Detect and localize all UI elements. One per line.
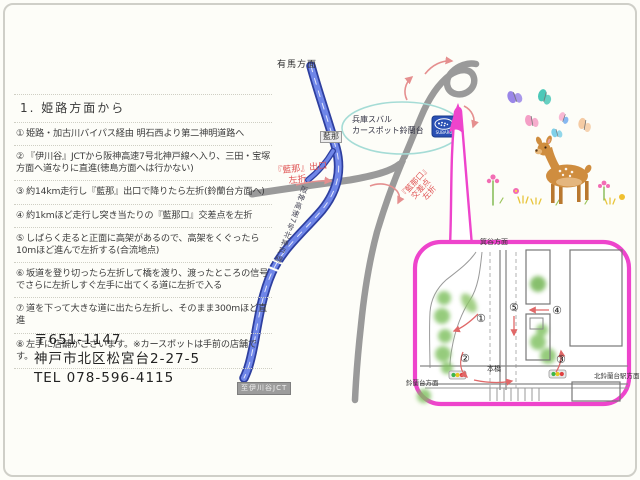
direction-step: ③約14km走行し『藍那』出口で降りたら左折(鈴蘭台方面へ) [14, 181, 272, 204]
inset-label-kitasuzurandai-station: 北鈴蘭台駅方面 [594, 370, 640, 380]
inset-step-4: ④ [552, 305, 562, 316]
inset-label-minotani: 箕谷方面 [480, 237, 508, 247]
address-line: 神戸市北区松宮台2-27-5 [34, 350, 200, 369]
step-number: ③ [16, 186, 24, 197]
direction-step: ④約1kmほど走行し突き当たりの『藍那口』交差点を左折 [14, 205, 272, 228]
step-text: 道を下って大きな道に出たら左折し、そのまま300mほど直進 [16, 303, 267, 326]
phone-number: TEL 078-596-4115 [34, 369, 200, 388]
step-number: ⑥ [16, 268, 24, 279]
step-number: ② [16, 151, 24, 162]
store-address: 〒651-1147 神戸市北区松宮台2-27-5 TEL 078-596-411… [34, 331, 200, 388]
label-shop-name: 兵庫スバル カースポット鈴蘭台 [352, 114, 424, 136]
step-number: ④ [16, 210, 24, 221]
step-number: ⑦ [16, 303, 24, 314]
step-text: 約14km走行し『藍那』出口で降りたら左折(鈴蘭台方面へ) [26, 186, 265, 197]
step-number: ⑤ [16, 233, 24, 244]
label-arima-direction: 有馬方面 [277, 57, 317, 70]
step-text: 約1kmほど走行し突き当たりの『藍那口』交差点を左折 [26, 210, 252, 221]
step-text: 坂道を登り切ったら左折して橋を渡り、渡ったところの信号でさらに左折しすぐ左手に出… [16, 268, 268, 291]
direction-step: ⑥坂道を登り切ったら左折して橋を渡り、渡ったところの信号でさらに左折しすぐ左手に… [14, 263, 272, 298]
direction-map-page: SUBARU [0, 0, 640, 480]
shop-name-line2: カースポット鈴蘭台 [352, 125, 424, 136]
postal-code: 〒651-1147 [34, 331, 200, 350]
step-text: 『伊川谷』JCTから阪神高速7号北神戸線へ入り、三田・宝塚方面へ道なりに直進(徳… [16, 151, 270, 174]
inset-step-3: ③ [556, 354, 566, 365]
directions-list: 1. 姫路方面から ①姫路・加古川バイパス経由 明石西より第二神明道路へ ②『伊… [14, 94, 272, 369]
directions-title: 1. 姫路方面から [14, 94, 272, 123]
butterflies [506, 88, 592, 140]
inset-step-2: ② [460, 353, 470, 364]
step-number: ⑧ [16, 339, 24, 350]
direction-step: ⑤しばらく走ると正面に高架があるので、高架をくぐったら10mほど進んで左折する(… [14, 228, 272, 263]
traffic-light-right [549, 370, 566, 378]
inset-label-bridge: 本橋 [487, 364, 501, 374]
direction-step: ②『伊川谷』JCTから阪神高速7号北神戸線へ入り、三田・宝塚方面へ道なりに直進(… [14, 146, 272, 181]
deer [535, 135, 593, 204]
inset-label-suzurandai: 鈴蘭台方面 [406, 377, 439, 387]
road-break-marks [404, 160, 419, 172]
aina-exit-sign: 藍那 [320, 131, 342, 143]
step-text: 姫路・加古川バイパス経由 明石西より第二神明道路へ [26, 128, 244, 139]
direction-step: ①姫路・加古川バイパス経由 明石西より第二神明道路へ [14, 123, 272, 146]
step-text: しばらく走ると正面に高架があるので、高架をくぐったら10mほど進んで左折する(合… [16, 233, 259, 256]
inset-step-1: ① [476, 313, 486, 324]
inset-step-5: ⑤ [509, 302, 519, 313]
step-number: ① [16, 128, 24, 139]
jct-direction-badge: 至伊川谷JCT [237, 382, 291, 395]
shop-name-line1: 兵庫スバル [352, 114, 424, 125]
direction-step: ⑦道を下って大きな道に出たら左折し、そのまま300mほど直進 [14, 298, 272, 333]
